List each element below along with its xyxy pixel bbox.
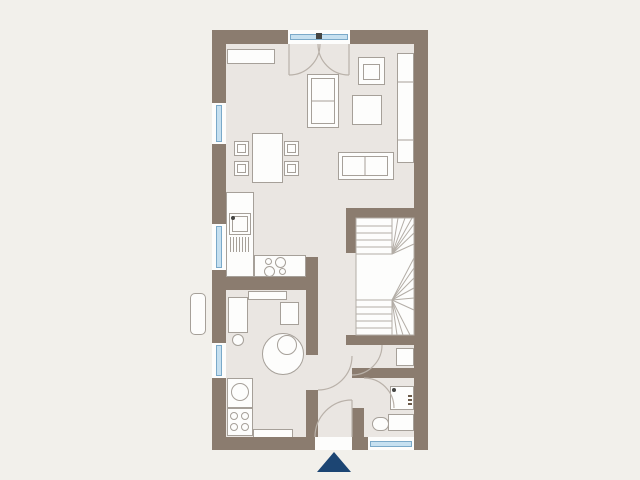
- wc-label-mark: [408, 395, 412, 397]
- window-left-2-glazing: [216, 226, 222, 268]
- wall-utility-lower: [306, 390, 318, 437]
- window-left-3: [212, 343, 226, 378]
- floor-plan: [0, 0, 640, 480]
- laundry-knob: [241, 412, 249, 420]
- sink-drainer: [239, 237, 240, 252]
- window-left-2: [212, 224, 226, 270]
- wall-bottom-pier: [352, 437, 368, 450]
- cooktop-burner: [264, 266, 275, 277]
- kitchen-faucet-dot-icon: [231, 216, 235, 220]
- sink-drainer: [233, 237, 234, 252]
- toilet-bowl: [372, 417, 389, 431]
- boiler-inner: [277, 335, 297, 355]
- window-left-1: [212, 103, 226, 144]
- wall-stair-bottom: [346, 335, 428, 345]
- laundry-knob: [230, 412, 238, 420]
- cooktop-burner: [279, 268, 286, 275]
- wall-wc-top: [352, 368, 428, 378]
- french-door-pivot: [316, 33, 322, 39]
- window-left-3-glazing: [216, 345, 222, 376]
- wall-utility-upper: [306, 257, 318, 355]
- sink-drainer: [242, 237, 243, 252]
- desk-chair: [232, 334, 244, 346]
- window-left-1-glazing: [216, 105, 222, 142]
- dining-chair: [284, 141, 299, 156]
- dining-chair: [284, 161, 299, 176]
- hall-niche: [396, 348, 414, 366]
- cooktop-burner: [275, 257, 286, 268]
- sink-drainer: [230, 237, 231, 252]
- wall-stair-top: [346, 208, 428, 218]
- window-wc: [368, 437, 414, 450]
- sink-drainer: [245, 237, 246, 252]
- utility-shelf-square: [280, 302, 299, 325]
- dining-chair: [234, 161, 249, 176]
- wc-faucet-dot-icon: [392, 388, 396, 392]
- exterior-element: [190, 293, 206, 335]
- laundry-knob: [230, 423, 238, 431]
- dining-chair: [234, 141, 249, 156]
- wall-wc-pier: [352, 408, 364, 437]
- sink-drainer: [248, 237, 249, 252]
- wall-stair-left: [346, 208, 356, 253]
- utility-shelf-top: [248, 291, 287, 300]
- dining-table: [252, 133, 283, 183]
- sink-drainer: [236, 237, 237, 252]
- wall-bottom-left: [212, 437, 315, 450]
- wall-right: [414, 30, 428, 450]
- sofa-vertical-cushion: [311, 78, 335, 124]
- sofa-horizontal-cushion: [342, 156, 388, 176]
- toilet-cistern: [388, 414, 414, 431]
- wc-label-mark: [408, 403, 412, 405]
- sideboard: [227, 49, 275, 64]
- window-wc-glazing: [370, 441, 412, 447]
- washer-drum: [231, 383, 249, 401]
- side-table: [352, 95, 382, 125]
- armchair-seat: [363, 64, 380, 80]
- wc-label-mark: [408, 399, 412, 401]
- cooktop-burner: [265, 258, 272, 265]
- entrance-marker-icon: [317, 452, 351, 472]
- wall-kitchen: [226, 277, 306, 290]
- wall-cabinet: [397, 53, 414, 163]
- utility-desk: [228, 297, 248, 333]
- entrance-threshold: [315, 437, 352, 450]
- laundry-knob: [241, 423, 249, 431]
